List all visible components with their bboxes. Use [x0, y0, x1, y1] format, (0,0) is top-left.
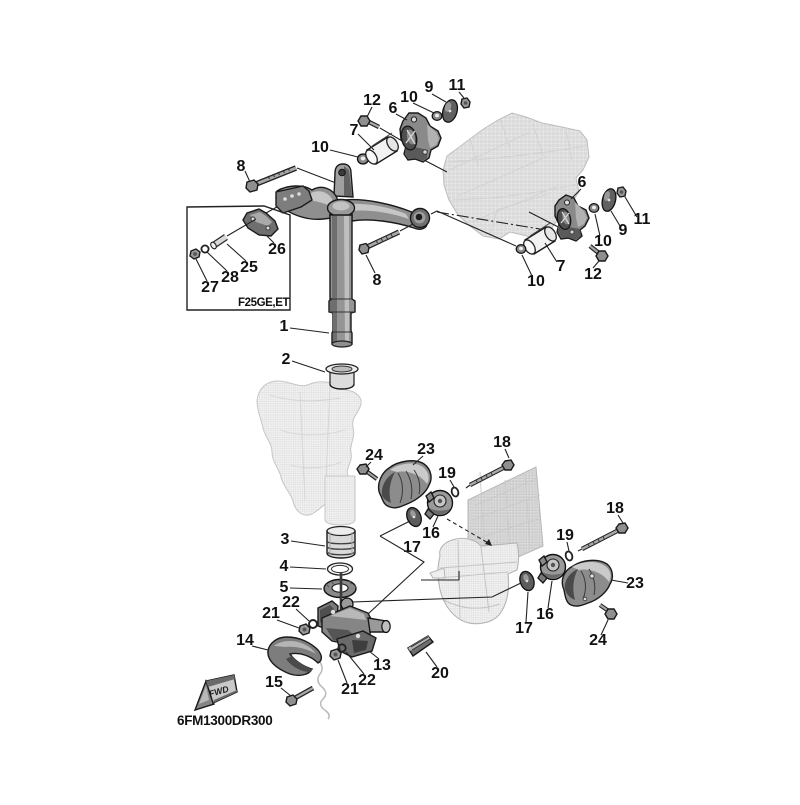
svg-text:9: 9 [619, 222, 628, 239]
svg-text:10: 10 [311, 139, 329, 156]
svg-text:6: 6 [578, 174, 587, 191]
svg-text:7: 7 [557, 258, 566, 275]
svg-text:12: 12 [584, 266, 602, 283]
svg-text:11: 11 [634, 211, 651, 228]
svg-text:10: 10 [400, 89, 418, 106]
svg-text:22: 22 [282, 594, 300, 611]
svg-text:18: 18 [606, 500, 624, 517]
svg-text:11: 11 [449, 77, 466, 94]
svg-text:19: 19 [556, 527, 574, 544]
svg-text:8: 8 [373, 272, 382, 289]
svg-text:10: 10 [527, 273, 545, 290]
svg-text:23: 23 [626, 575, 644, 592]
svg-text:12: 12 [363, 92, 381, 109]
svg-text:9: 9 [425, 79, 434, 96]
svg-text:1: 1 [280, 318, 289, 335]
svg-text:6FM1300DR300: 6FM1300DR300 [177, 713, 272, 728]
svg-text:F25GE,ET: F25GE,ET [238, 297, 289, 309]
svg-text:10: 10 [594, 233, 612, 250]
svg-text:4: 4 [280, 558, 289, 575]
svg-text:18: 18 [493, 434, 511, 451]
svg-text:26: 26 [268, 241, 286, 258]
svg-text:28: 28 [221, 269, 239, 286]
svg-text:22: 22 [358, 672, 376, 689]
svg-text:24: 24 [365, 447, 383, 464]
svg-text:15: 15 [265, 674, 283, 691]
svg-text:25: 25 [240, 259, 258, 276]
svg-text:21: 21 [262, 605, 280, 622]
svg-text:14: 14 [236, 632, 254, 649]
svg-text:24: 24 [589, 632, 607, 649]
svg-text:16: 16 [536, 606, 554, 623]
svg-text:27: 27 [201, 279, 219, 296]
svg-text:17: 17 [515, 620, 533, 637]
svg-text:16: 16 [422, 525, 440, 542]
svg-text:8: 8 [237, 158, 246, 175]
svg-text:20: 20 [431, 665, 449, 682]
svg-text:21: 21 [341, 681, 359, 698]
svg-text:3: 3 [281, 531, 290, 548]
svg-text:2: 2 [282, 351, 291, 368]
svg-text:19: 19 [438, 465, 456, 482]
svg-text:7: 7 [350, 122, 359, 139]
svg-text:17: 17 [403, 539, 421, 556]
svg-text:23: 23 [417, 441, 435, 458]
